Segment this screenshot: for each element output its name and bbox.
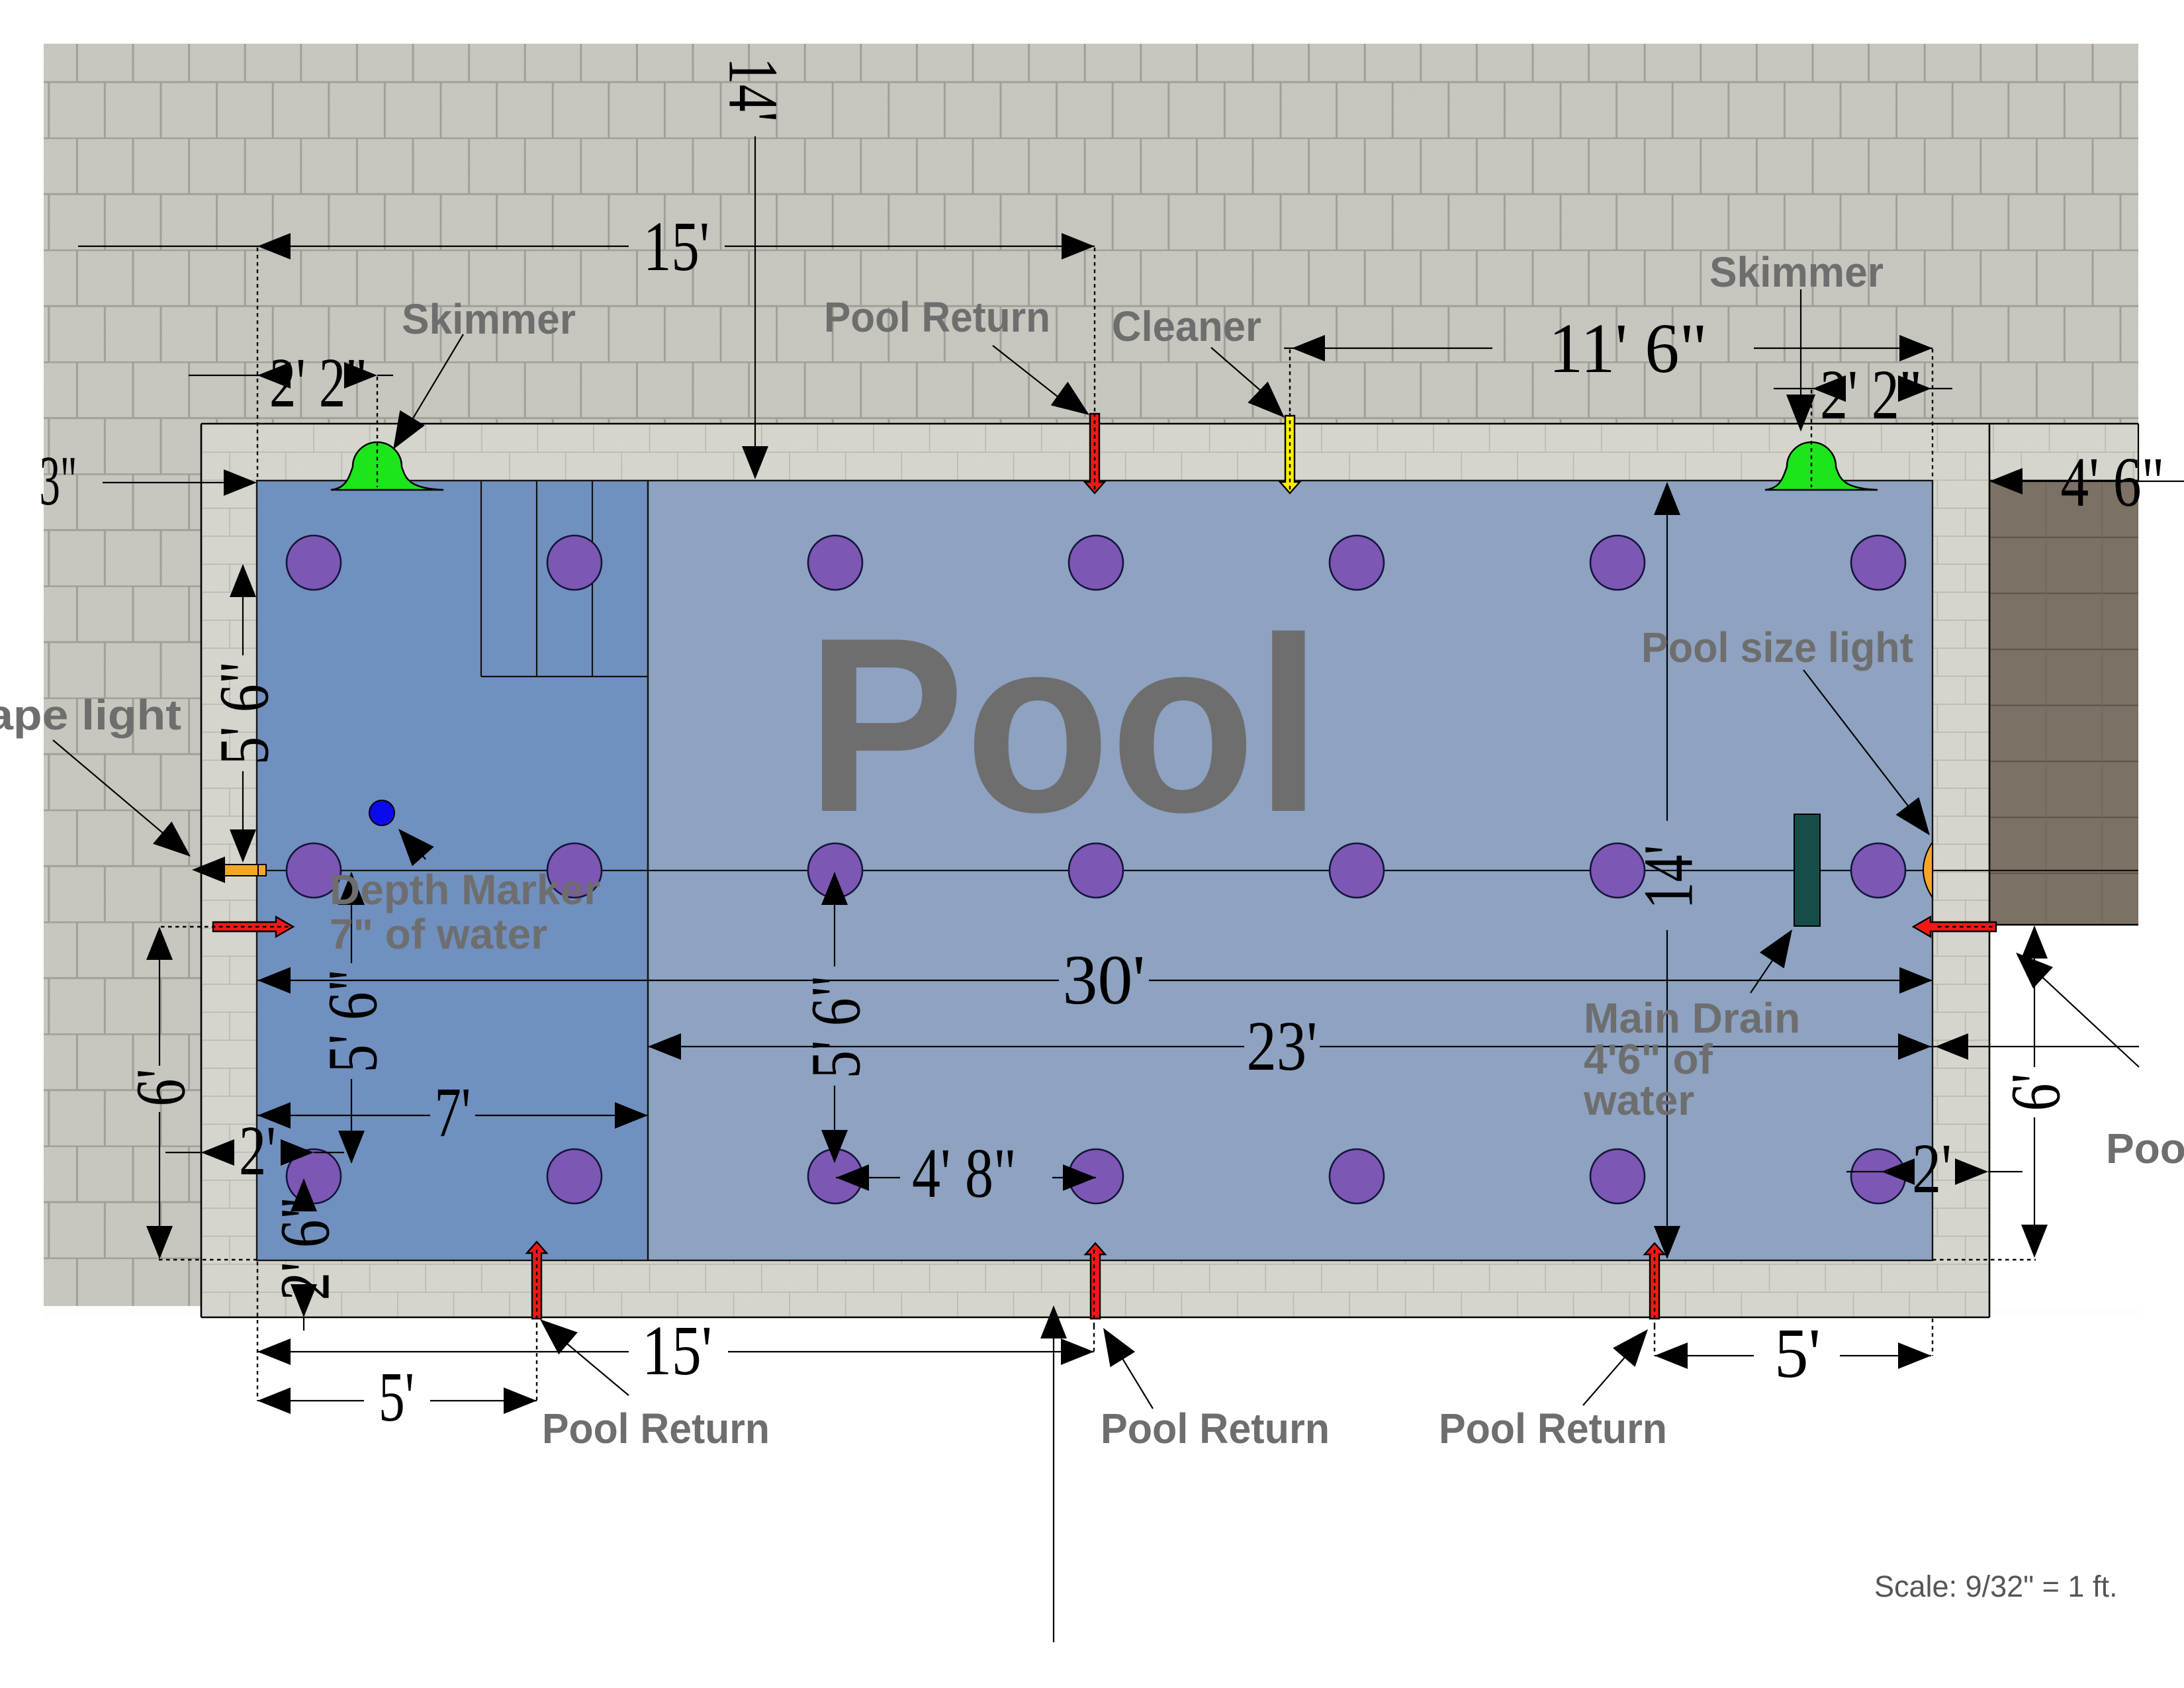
svg-text:4' 8": 4' 8": [912, 1135, 1017, 1213]
svg-text:2': 2': [1912, 1130, 1952, 1208]
svg-text:6': 6': [1997, 1074, 2075, 1111]
svg-text:Pool size light: Pool size light: [1641, 624, 1913, 671]
svg-text:2' 2": 2' 2": [269, 344, 367, 422]
svg-text:11' 6": 11' 6": [1549, 310, 1707, 388]
svg-text:5': 5': [379, 1358, 414, 1436]
svg-text:5' 6": 5' 6": [314, 969, 392, 1073]
svg-text:15': 15': [643, 208, 709, 286]
svg-text:7" of water: 7" of water: [330, 910, 547, 958]
svg-text:7': 7': [435, 1074, 471, 1152]
svg-text:2' 6": 2' 6": [266, 1197, 344, 1301]
svg-text:Skimmer: Skimmer: [1709, 248, 1884, 296]
svg-text:Pool: Pool: [806, 586, 1322, 864]
svg-text:Pool Return: Pool Return: [824, 293, 1050, 341]
svg-text:Scale: 9/32" = 1 ft.: Scale: 9/32" = 1 ft.: [1874, 1570, 2117, 1603]
svg-text:23': 23': [1247, 1008, 1318, 1086]
svg-text:4' 6": 4' 6": [2061, 444, 2165, 522]
svg-text:5': 5': [1774, 1315, 1821, 1393]
svg-text:14': 14': [714, 58, 792, 122]
svg-text:Skimmer: Skimmer: [402, 295, 576, 343]
svg-text:15': 15': [642, 1312, 712, 1390]
svg-text:6': 6': [122, 1069, 200, 1107]
svg-text:3": 3": [40, 442, 77, 520]
svg-text:Pool Return: Pool Return: [1101, 1405, 1330, 1452]
svg-text:Pool Return: Pool Return: [1439, 1405, 1667, 1452]
svg-text:Pool Return: Pool Return: [2106, 1125, 2184, 1172]
svg-text:30': 30': [1063, 941, 1146, 1019]
svg-text:Depth Marker: Depth Marker: [330, 866, 600, 914]
svg-text:5' 6": 5' 6": [797, 975, 875, 1079]
svg-text:Cleaner: Cleaner: [1112, 303, 1261, 350]
svg-text:5' 6": 5' 6": [205, 661, 283, 765]
svg-text:14': 14': [1629, 845, 1707, 910]
svg-text:2' 2": 2' 2": [1820, 356, 1922, 434]
svg-text:Landscape light: Landscape light: [0, 691, 181, 739]
svg-text:water: water: [1583, 1076, 1694, 1124]
svg-text:Pool Return: Pool Return: [542, 1405, 770, 1452]
svg-text:2': 2': [239, 1112, 276, 1190]
